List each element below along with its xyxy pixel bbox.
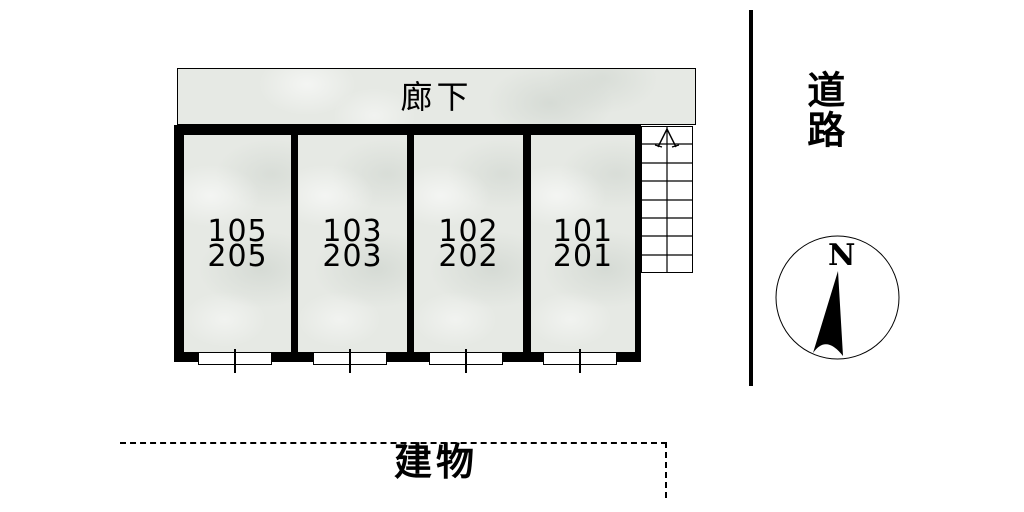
room-number-lower: 203 — [322, 244, 382, 269]
corridor-area: 廊下 — [177, 68, 696, 125]
room-101-201: 101 201 — [531, 135, 635, 352]
window-opening — [429, 352, 503, 365]
window-center-tick — [234, 349, 236, 373]
road-label: 道路 — [801, 70, 843, 150]
room-103-203: 103 203 — [298, 135, 407, 352]
compass-north-label: N — [828, 238, 855, 273]
room-number-lower: 201 — [553, 244, 613, 269]
building-label: 建物 — [286, 442, 586, 484]
room-number-lower: 205 — [207, 244, 267, 269]
window-center-tick — [465, 349, 467, 373]
room-label: 102 202 — [438, 219, 498, 269]
road-boundary-line — [749, 10, 753, 386]
floor-plan: 廊下 105 205 103 203 102 202 101 201 — [0, 0, 1024, 512]
compass: N — [774, 234, 901, 361]
room-105-205: 105 205 — [184, 135, 291, 352]
window-opening — [543, 352, 617, 365]
building-boundary-dashed-vertical — [665, 442, 667, 498]
window-opening — [313, 352, 387, 365]
window-center-tick — [579, 349, 581, 373]
window-opening — [198, 352, 272, 365]
staircase-steps — [641, 126, 693, 273]
corridor-label: 廊下 — [400, 81, 472, 113]
room-102-202: 102 202 — [414, 135, 523, 352]
room-label: 101 201 — [553, 219, 613, 269]
room-block: 105 205 103 203 102 202 101 201 — [174, 125, 641, 362]
room-number-lower: 202 — [438, 244, 498, 269]
room-label: 103 203 — [322, 219, 382, 269]
window-center-tick — [349, 349, 351, 373]
room-label: 105 205 — [207, 219, 267, 269]
staircase — [641, 126, 693, 273]
